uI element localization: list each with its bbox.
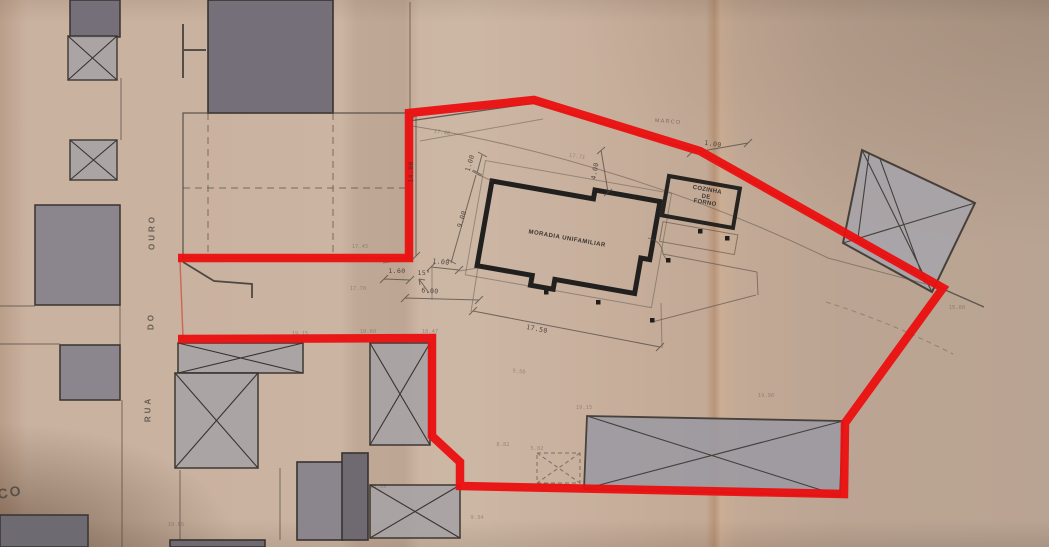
faint-mark: 17.70 — [350, 286, 367, 292]
frontage-step-line — [183, 262, 252, 298]
post — [725, 236, 730, 241]
post — [666, 258, 671, 263]
terrace-lines — [648, 238, 758, 322]
post — [596, 300, 601, 305]
neighbor-buildings-bottom — [170, 343, 460, 547]
street-name-rua: RUA — [144, 396, 153, 422]
faint-mark: 5.02 — [530, 446, 543, 452]
building — [35, 205, 120, 305]
extension-lines — [383, 174, 662, 348]
building-top-center — [208, 0, 333, 113]
terrace-outline — [648, 238, 758, 322]
site-plan-linework — [0, 0, 1049, 547]
faint-mark: 17.45 — [352, 244, 369, 250]
street-name-ouro: OURO — [148, 214, 157, 250]
dashed-cross — [537, 453, 580, 483]
faint-mark: 19.65 — [168, 522, 185, 528]
parcel-grid — [183, 113, 408, 258]
faint-mark: 19.15 — [576, 405, 593, 411]
path-curve-dashed — [826, 302, 953, 354]
scanned-site-plan: OURO DO RUA CO MORADIA UNIFAMILIAR COZIN… — [0, 0, 1049, 547]
survey-t-marker — [183, 24, 206, 78]
neighbor-buildings-left — [0, 0, 120, 547]
dashed-structure — [537, 453, 580, 483]
building — [70, 0, 120, 37]
dim-line-1750 — [469, 307, 664, 351]
faint-mark: 19.90 — [758, 393, 775, 399]
building — [0, 515, 88, 547]
parcel-outline — [183, 113, 408, 258]
dim-label-front-setback: 6.00 — [421, 286, 439, 295]
dim-label-lot-depth: 14.00 — [407, 161, 415, 183]
faint-mark: 9.56 — [512, 368, 526, 375]
faint-mark: 8.82 — [496, 442, 509, 448]
parcel-dashed-lines — [183, 113, 408, 258]
post — [698, 229, 703, 234]
building — [170, 540, 265, 547]
dim-label-setback-side: 1.00 — [432, 257, 450, 267]
faint-mark: 18.55 — [370, 484, 387, 490]
post — [650, 318, 655, 323]
courtyard-warehouse — [584, 416, 843, 496]
faint-mark: 18.60 — [360, 329, 377, 335]
building — [342, 453, 368, 540]
street-name-do: DO — [147, 312, 156, 330]
building — [60, 345, 120, 400]
dim-label-boundary-angle: 15° — [418, 269, 431, 277]
post — [544, 290, 549, 295]
dim-line-160 — [380, 275, 414, 284]
faint-mark: 18.47 — [422, 329, 439, 335]
faint-mark: 19.15 — [292, 331, 309, 337]
faint-mark: 15.80 — [949, 305, 966, 311]
dim-label-frontage-offset: 1.60 — [388, 267, 405, 275]
dim-line-6 — [401, 294, 483, 304]
faint-mark: 9.34 — [470, 515, 483, 521]
building — [297, 462, 343, 540]
boundary-frontage-hairline — [180, 261, 183, 337]
